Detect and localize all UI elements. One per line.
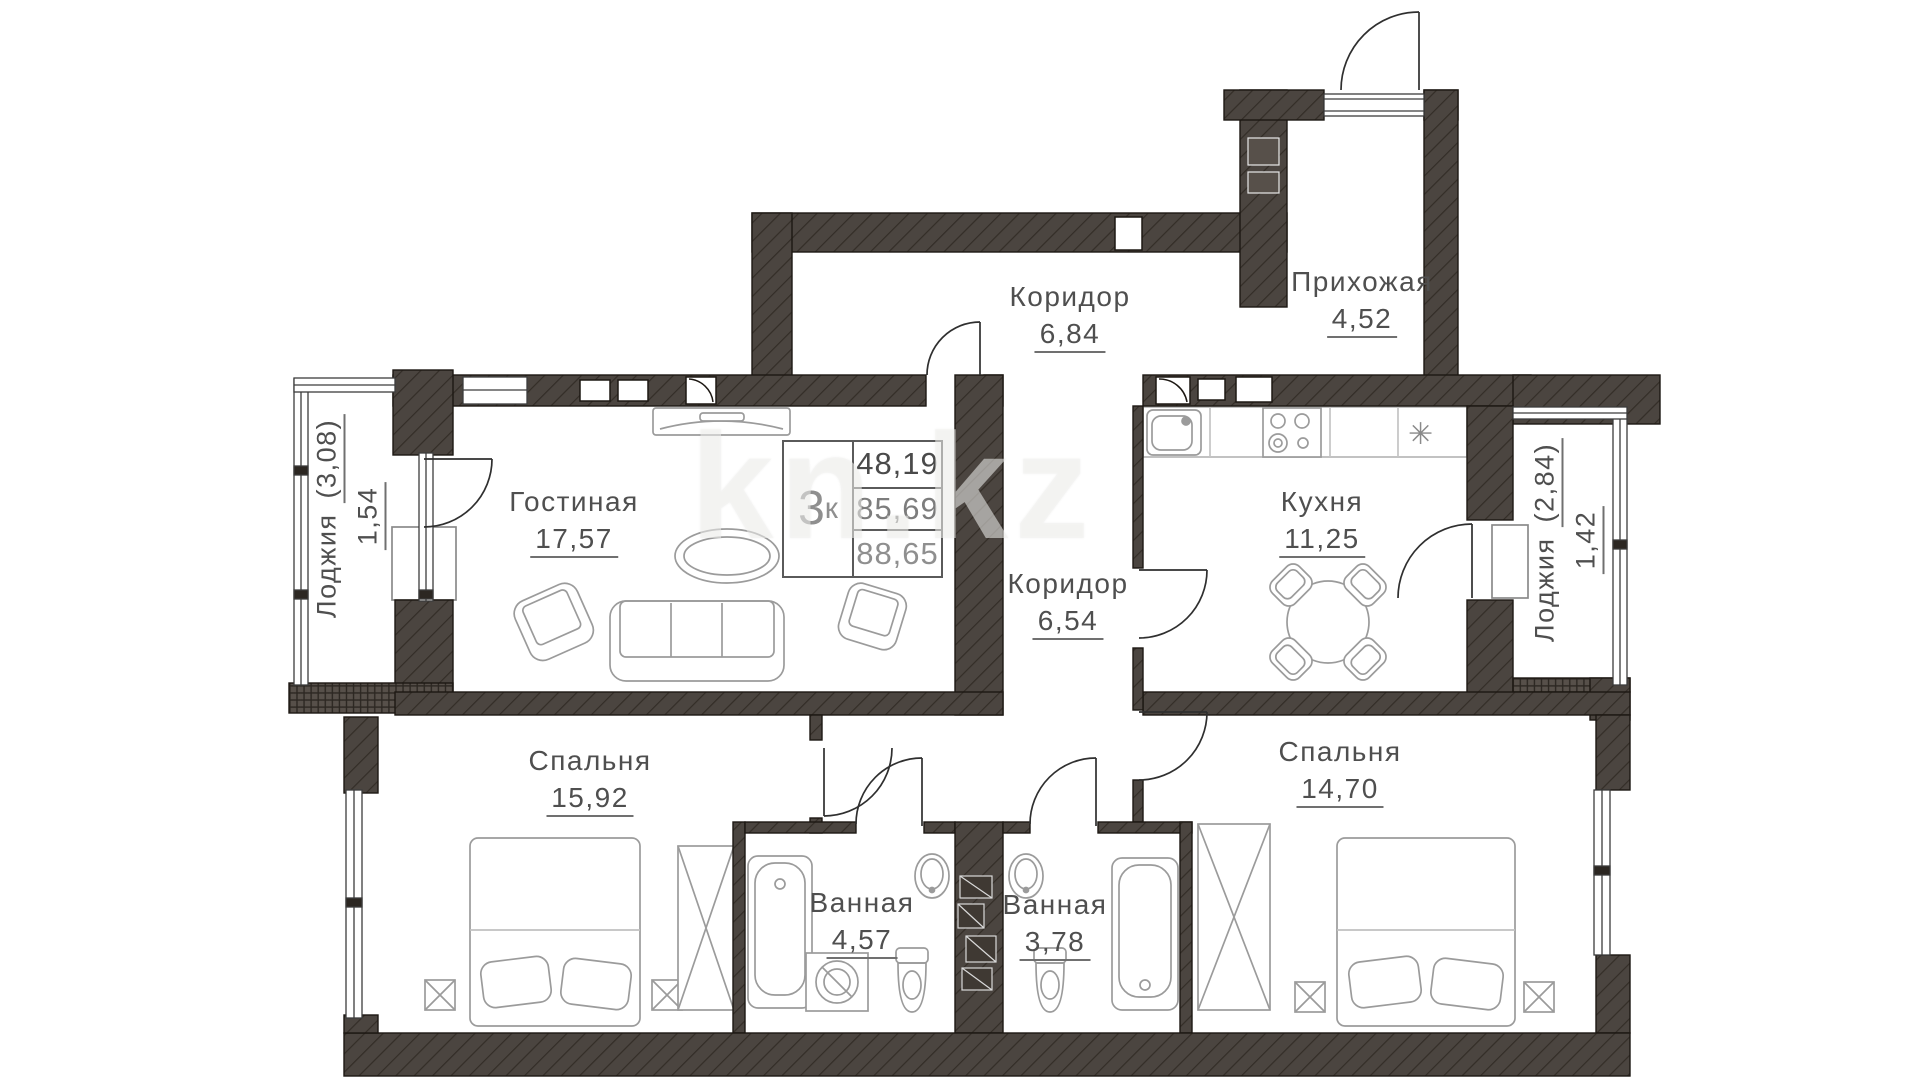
- armchair-icon: [510, 579, 598, 665]
- unit-rooms-count: 3: [798, 485, 825, 533]
- room-label-loggia-left: Лоджия (3,08) 1,54: [314, 414, 387, 618]
- room-area: 1,54: [355, 482, 387, 551]
- kitchen-balcony-door-arc: [1398, 524, 1472, 598]
- room-area: 6,84: [1035, 320, 1106, 353]
- room-label-hallway: Прихожая 4,52: [1291, 268, 1433, 338]
- vent-shaft-icon: [1248, 138, 1279, 193]
- room-area: 11,25: [1279, 525, 1365, 558]
- wall: [1180, 822, 1192, 1033]
- wall: [1224, 90, 1324, 120]
- wall: [1133, 648, 1143, 710]
- room-gross-area: (3,08): [314, 414, 346, 504]
- room-label-corridor-inner: Коридор 6,54: [1007, 570, 1128, 640]
- dining-table-icon: [1266, 560, 1389, 683]
- wall: [395, 692, 1003, 715]
- unit-type-cell: 3к: [784, 442, 854, 576]
- room-area: 14,70: [1296, 775, 1384, 808]
- bedroom-right-door-arc: [1139, 712, 1207, 780]
- tv-stand-icon: [653, 408, 790, 435]
- unit-total-area: 85,69: [854, 487, 941, 532]
- room-name: Коридор: [1007, 570, 1128, 598]
- entry-threshold: [1324, 94, 1424, 116]
- wall: [810, 715, 822, 740]
- unit-rooms-suffix: к: [825, 494, 838, 524]
- window: [294, 379, 308, 685]
- bathroom-right-door-arc: [1030, 758, 1096, 826]
- room-name: Коридор: [1009, 283, 1130, 311]
- wall: [1467, 406, 1513, 520]
- unit-total-area-with-loggia: 88,65: [854, 531, 941, 576]
- room-area: 17,57: [530, 525, 618, 558]
- coffee-table-icon: [675, 529, 779, 583]
- wall: [924, 822, 955, 833]
- bathtub-icon: [1112, 858, 1178, 1010]
- room-label-bathroom-left: Ванная 4,57: [810, 889, 915, 959]
- room-area: 1,42: [1573, 506, 1605, 575]
- room-gross-area: (2,84): [1532, 438, 1564, 528]
- fridge-icon: ✳: [1408, 418, 1433, 451]
- bed-icon: [1337, 838, 1515, 1026]
- wall: [1596, 955, 1630, 1033]
- nightstand-icon: [425, 980, 455, 1010]
- nightstand-icon: [1295, 982, 1325, 1012]
- unit-living-area: 48,19: [854, 442, 941, 487]
- wall: [344, 1033, 1630, 1076]
- wall: [733, 822, 745, 1033]
- wardrobe-icon: [678, 846, 734, 1010]
- armchair-icon: [835, 580, 909, 653]
- room-name: Ванная: [810, 889, 915, 917]
- wall: [955, 375, 1003, 715]
- bed-icon: [470, 838, 640, 1026]
- wall: [1240, 90, 1287, 307]
- sofa-icon: [610, 601, 784, 681]
- room-label-living: Гостиная 17,57: [509, 488, 639, 558]
- room-label-bathroom-right: Ванная 3,78: [1003, 891, 1108, 961]
- kitchen-door-arc: [1139, 570, 1207, 638]
- stove-icon: [1263, 408, 1321, 457]
- kitchen-sink-icon: [1147, 410, 1201, 455]
- living-room-door-arc: [927, 322, 980, 375]
- room-label-kitchen: Кухня 11,25: [1279, 488, 1365, 558]
- wall: [1467, 600, 1513, 703]
- room-label-bedroom-right: Спальня 14,70: [1278, 738, 1401, 808]
- room-name: Спальня: [1278, 738, 1401, 766]
- wall: [752, 213, 1287, 252]
- room-area: 4,57: [827, 926, 898, 959]
- wall: [1098, 822, 1192, 833]
- bathtub-icon: [748, 856, 812, 1008]
- unit-info-table: 3к 48,19 85,69 88,65: [782, 440, 943, 578]
- wall: [344, 717, 378, 793]
- window: [346, 790, 362, 1018]
- washing-machine-icon: [806, 953, 868, 1011]
- vent-shaft-icon: [1115, 217, 1142, 250]
- entry-door-arc: [1341, 12, 1419, 90]
- wall: [1133, 406, 1143, 568]
- room-area: 4,52: [1327, 305, 1398, 338]
- window: [1513, 407, 1627, 419]
- room-label-loggia-right: Лоджия (2,84) 1,42: [1532, 438, 1605, 642]
- washbasin-icon: [915, 854, 949, 898]
- wall: [1143, 692, 1630, 715]
- room-name: Гостиная: [509, 488, 639, 516]
- room-area: 15,92: [546, 784, 634, 817]
- room-name: Кухня: [1281, 488, 1363, 516]
- wall: [1003, 822, 1030, 833]
- wall: [745, 822, 856, 833]
- wardrobe-icon: [1198, 824, 1270, 1010]
- wall: [393, 370, 453, 455]
- room-label-bedroom-left: Спальня 15,92: [528, 747, 651, 817]
- vent-shaft-icon: [580, 380, 610, 401]
- vent-shaft-icon: [1236, 377, 1272, 402]
- room-name: Спальня: [528, 747, 651, 775]
- room-name: Прихожая: [1291, 268, 1433, 296]
- wall: [1596, 715, 1630, 790]
- wall: [395, 600, 453, 692]
- vent-shaft-icon: [1156, 377, 1190, 404]
- vent-shaft-icon: [686, 377, 716, 404]
- room-name: Ванная: [1003, 891, 1108, 919]
- nightstand-icon: [1524, 982, 1554, 1012]
- wall: [1133, 780, 1143, 822]
- window-sill-panel: [1492, 525, 1528, 598]
- floor-plan-page: ✳: [0, 0, 1920, 1080]
- vent-shaft-icon: [618, 380, 648, 401]
- room-label-corridor-top: Коридор 6,84: [1009, 283, 1130, 353]
- wall: [752, 213, 792, 381]
- vent-shaft-icon: [1198, 379, 1225, 400]
- room-area: 3,78: [1020, 928, 1091, 961]
- window: [1594, 790, 1610, 955]
- window: [294, 378, 395, 392]
- window: [1613, 415, 1627, 685]
- window: [463, 377, 527, 404]
- floor-plan-drawing: ✳: [0, 0, 1920, 1080]
- room-area: 6,54: [1033, 607, 1104, 640]
- room-name: Лоджия: [1532, 537, 1559, 642]
- balcony-door-arc: [424, 459, 492, 527]
- room-name: Лоджия: [314, 513, 341, 618]
